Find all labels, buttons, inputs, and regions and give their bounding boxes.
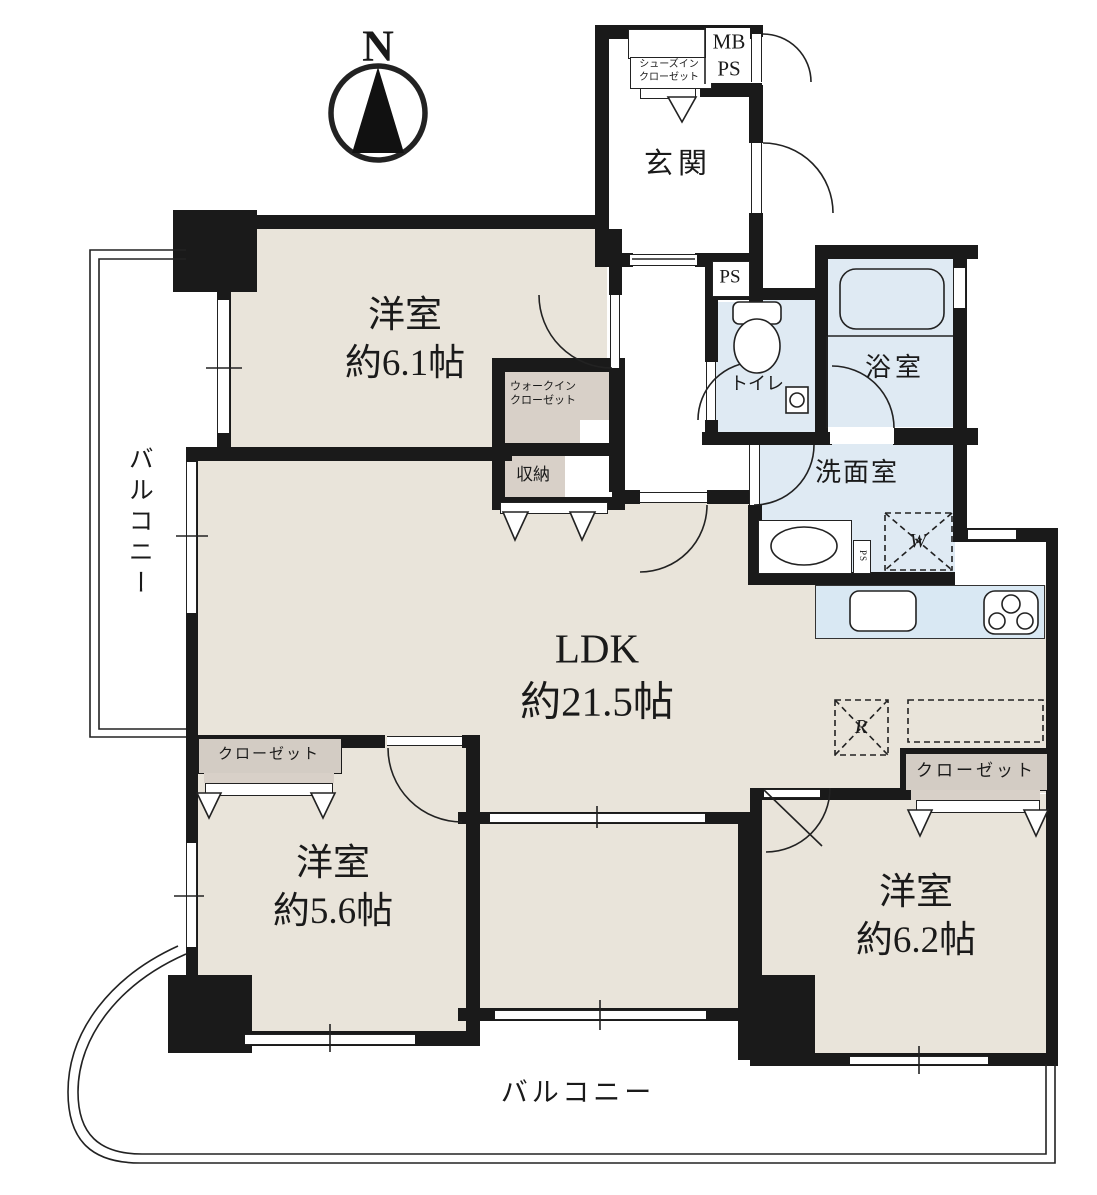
wall [466, 735, 480, 1046]
wall [492, 443, 625, 456]
exterior-gap [965, 443, 1050, 530]
kitchen-counter [815, 585, 1045, 639]
window [217, 300, 230, 433]
window [968, 529, 1016, 540]
bedroom-nw-label: 洋室 約6.1帖 [345, 292, 465, 388]
balcony-left-label: バルコニー [122, 446, 155, 601]
wall [186, 447, 512, 461]
closet-se-band [911, 790, 1040, 800]
floor-plan: N バルコニー バルコニー 玄関 シューズイン クローゼット MB PS PS … [0, 0, 1097, 1195]
door-opening [830, 428, 894, 444]
wall [612, 358, 625, 510]
sliding-opening [490, 813, 705, 823]
ps-upper-label: PS [719, 266, 740, 291]
washroom-label: 洗面室 [815, 456, 899, 490]
middle-room-floor [460, 793, 750, 1015]
washbasin-cabinet [758, 520, 852, 574]
door-leaf [749, 445, 760, 505]
walk-in-closet-label: ウォークイン クローゼット [510, 380, 576, 409]
bedroom-se-label: 洋室 約6.2帖 [856, 869, 976, 965]
ldk-label: LDK 約21.5帖 [520, 623, 674, 730]
wall [815, 245, 828, 445]
compass-needle-icon [352, 67, 404, 153]
door-leaf [640, 492, 707, 503]
wall [595, 25, 609, 265]
wall [609, 229, 622, 265]
mb-ps-label: MB PS [713, 29, 746, 84]
storage-label: 収納 [516, 464, 550, 486]
washer-mark-label: W [910, 528, 927, 554]
door-opening [387, 736, 462, 746]
door-leaf [610, 295, 620, 368]
window [850, 1056, 988, 1065]
shoes-closet-box [628, 29, 706, 59]
balcony-bottom-label: バルコニー [501, 1075, 655, 1110]
wall [750, 788, 762, 1066]
toilet-label: トイレ [730, 372, 784, 395]
wall [492, 358, 625, 372]
walk-in-closet-notch [580, 420, 612, 443]
wall [492, 358, 505, 510]
closet-sw-label: クローゼット [218, 745, 320, 765]
hallway-floor [705, 443, 750, 492]
closet-sw-band [204, 773, 334, 783]
door-leaf [751, 143, 762, 213]
wall [705, 300, 718, 362]
wall [609, 265, 622, 295]
closet-recess [500, 502, 608, 514]
door-opening [764, 789, 820, 798]
closet-recess [205, 783, 333, 796]
sliding-opening [630, 254, 697, 266]
window [186, 843, 197, 947]
closet-recess [916, 800, 1040, 813]
shoes-closet-label: シューズイン クローゼット [639, 58, 699, 84]
toilet-floor [716, 298, 817, 434]
window [953, 268, 966, 308]
door-leaf [751, 34, 762, 82]
wall [707, 490, 749, 504]
door-arc [763, 34, 811, 82]
wall [255, 215, 609, 229]
window [186, 462, 197, 613]
wall [702, 432, 832, 445]
north-label: N [362, 17, 394, 74]
wall [748, 433, 762, 445]
ps-small-label: PS [856, 550, 868, 562]
bedroom-sw-label: 洋室 約5.6帖 [273, 840, 393, 936]
wall [1046, 528, 1058, 1066]
entrance-label: 玄関 [644, 146, 712, 184]
storage-notch [565, 456, 612, 497]
kitchen-corner [955, 542, 1046, 585]
window [495, 1010, 706, 1020]
door-leaf [706, 362, 716, 420]
fridge-mark-label: R [855, 714, 867, 740]
pillar [173, 210, 257, 292]
bathroom-label: 浴室 [865, 351, 925, 385]
window [245, 1034, 415, 1045]
door-arc [763, 143, 833, 213]
bathroom-floor [826, 257, 955, 427]
compass-icon [331, 66, 425, 160]
closet-se-label: クローゼット [916, 760, 1036, 782]
